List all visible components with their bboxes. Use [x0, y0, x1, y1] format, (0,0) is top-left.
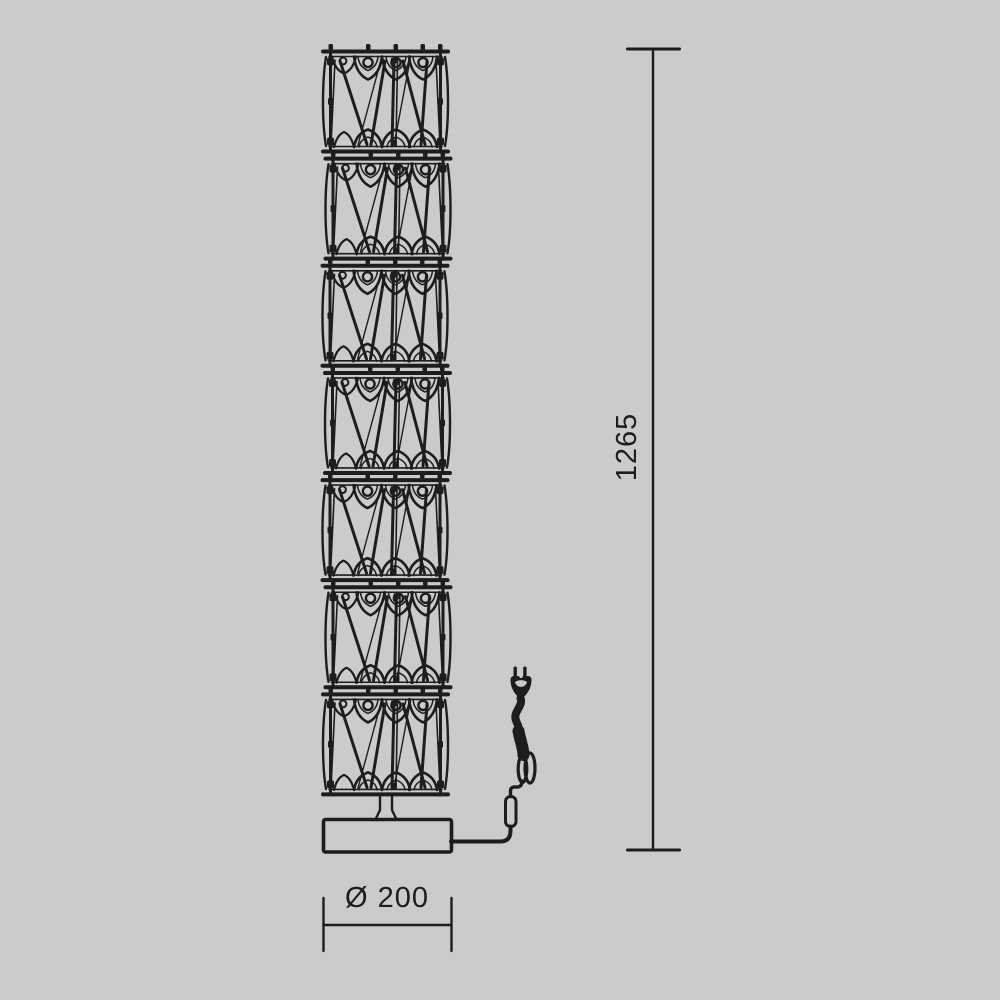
lattice-segment: [323, 473, 448, 581]
lattice-segment: [326, 151, 451, 259]
lattice-segment: [323, 258, 448, 366]
cord-above-switch: [511, 781, 523, 797]
lamp-base: [324, 820, 452, 853]
power-cord: [451, 667, 535, 842]
cord-to-base: [451, 827, 511, 842]
power-plug: [511, 667, 531, 699]
cord-coil: [515, 698, 535, 783]
lattice-segment: [323, 44, 448, 152]
plug-prong: [523, 667, 526, 678]
drawing-page: 1265 Ø 200: [0, 0, 1000, 1000]
plug-prong: [514, 667, 517, 678]
height-dimension: 1265: [611, 49, 680, 850]
lattice-segment: [326, 580, 451, 688]
diameter-dimension-label: Ø 200: [345, 882, 429, 914]
lamp-stem: [376, 797, 397, 820]
diameter-dimension: Ø 200: [324, 882, 452, 951]
height-dimension-label: 1265: [611, 413, 643, 482]
lattice-segment: [323, 687, 448, 795]
lattice-segment: [325, 365, 450, 473]
technical-drawing: 1265 Ø 200: [0, 0, 1000, 1000]
lamp-column: [323, 44, 451, 795]
inline-switch: [505, 797, 517, 827]
